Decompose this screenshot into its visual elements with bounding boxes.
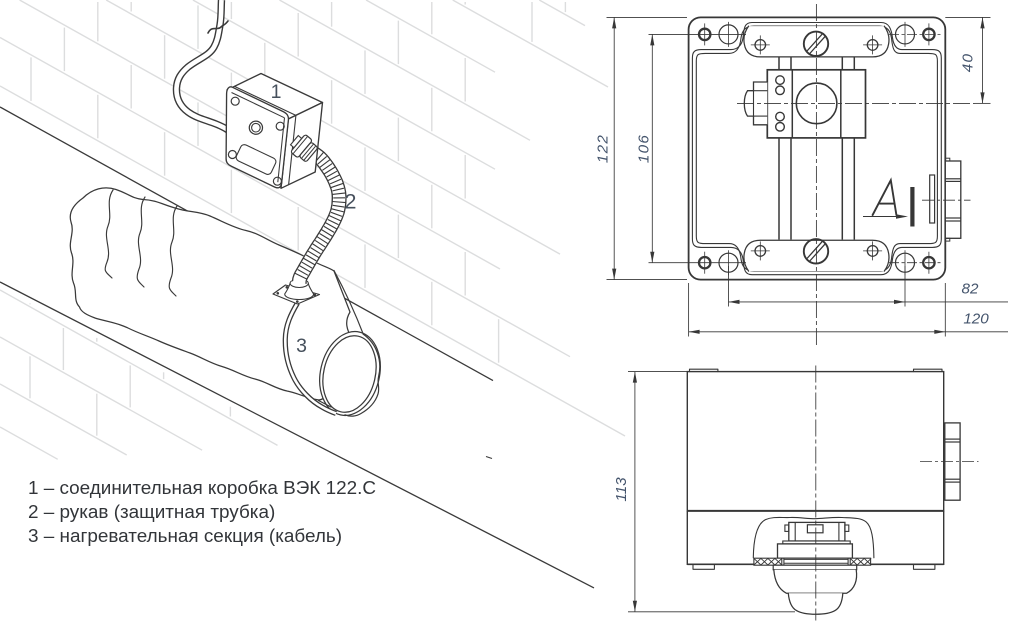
svg-text:120: 120 (963, 311, 989, 328)
svg-text:122: 122 (595, 134, 612, 163)
svg-text:82: 82 (962, 281, 979, 298)
svg-text:106: 106 (636, 134, 653, 163)
svg-text:2 – рукав (защитная трубка): 2 – рукав (защитная трубка) (28, 502, 275, 523)
svg-text:3 – нагревательная секция (каб: 3 – нагревательная секция (кабель) (28, 526, 342, 547)
svg-text:40: 40 (960, 53, 977, 73)
svg-text:3: 3 (296, 335, 307, 357)
svg-text:1 – соединительная коробка ВЭК: 1 – соединительная коробка ВЭК 122.С (28, 478, 376, 499)
svg-text:2: 2 (345, 190, 357, 214)
svg-text:1: 1 (271, 81, 282, 103)
svg-text:113: 113 (613, 477, 630, 502)
